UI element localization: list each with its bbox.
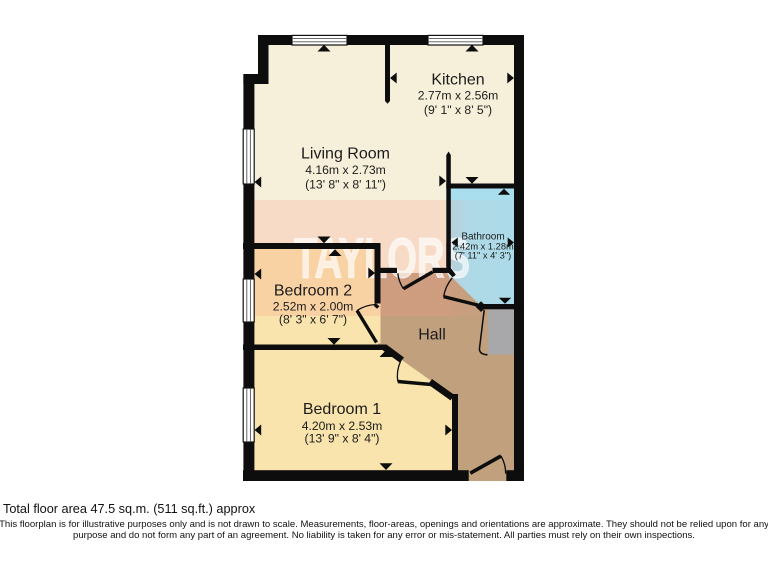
svg-text:2.52m x 2.00m: 2.52m x 2.00m	[273, 300, 354, 314]
svg-text:Bedroom 1: Bedroom 1	[303, 401, 381, 418]
svg-text:This floorplan is for illustra: This floorplan is for illustrative purpo…	[0, 519, 768, 530]
svg-text:Living Room: Living Room	[301, 146, 390, 163]
svg-text:(13' 9" x 8' 4"): (13' 9" x 8' 4")	[305, 432, 380, 446]
svg-text:(7' 11" x 4' 3"): (7' 11" x 4' 3")	[455, 251, 512, 261]
svg-text:Kitchen: Kitchen	[431, 72, 484, 89]
svg-text:(8' 3" x 6' 7"): (8' 3" x 6' 7")	[279, 313, 347, 327]
svg-text:2.77m x 2.56m: 2.77m x 2.56m	[418, 89, 499, 103]
svg-text:Total floor area 47.5 sq.m. (5: Total floor area 47.5 sq.m. (511 sq.ft.)…	[3, 502, 256, 516]
svg-text:4.16m x 2.73m: 4.16m x 2.73m	[305, 163, 386, 177]
svg-text:Bedroom 2: Bedroom 2	[274, 283, 352, 300]
svg-text:TAYLORS: TAYLORS	[294, 227, 470, 291]
svg-text:Hall: Hall	[418, 327, 446, 344]
svg-text:(13' 8" x 8' 11"): (13' 8" x 8' 11")	[305, 178, 386, 192]
svg-text:purpose and do not form any pa: purpose and do not form any part of an a…	[73, 530, 695, 541]
svg-text:(9' 1" x 8' 5"): (9' 1" x 8' 5")	[424, 103, 492, 117]
